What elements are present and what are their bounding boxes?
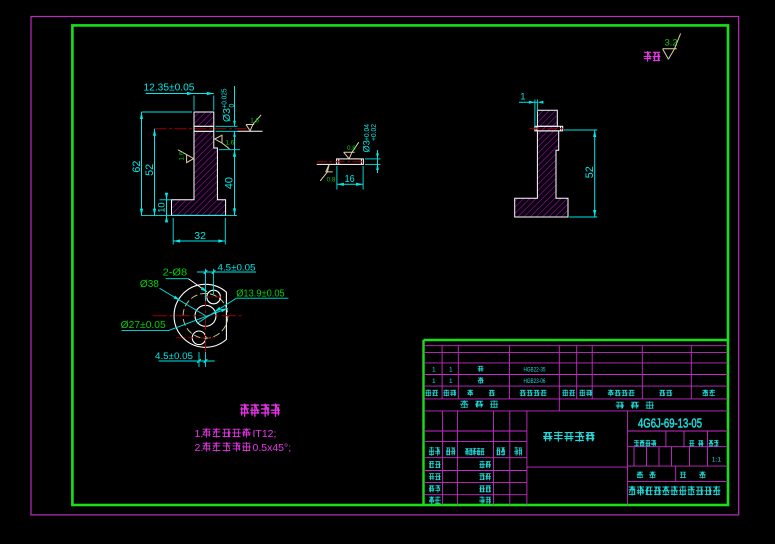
svg-text:Ø13.9±0.05: Ø13.9±0.05 bbox=[236, 288, 285, 299]
svg-text:IT12;: IT12; bbox=[253, 428, 277, 440]
svg-text:16: 16 bbox=[345, 174, 355, 185]
svg-text:1.6: 1.6 bbox=[226, 140, 235, 147]
svg-text:4.5±0.05: 4.5±0.05 bbox=[218, 263, 256, 274]
svg-text:0.5x45°;: 0.5x45°; bbox=[253, 442, 292, 454]
svg-text:+0.04: +0.04 bbox=[364, 124, 371, 141]
svg-text:62: 62 bbox=[131, 161, 143, 173]
svg-text:1: 1 bbox=[432, 367, 436, 374]
svg-text:10: 10 bbox=[157, 202, 168, 213]
svg-text:1.: 1. bbox=[195, 428, 204, 440]
svg-text:12.35±0.05: 12.35±0.05 bbox=[144, 83, 195, 94]
svg-text:HGB22-35: HGB22-35 bbox=[524, 367, 546, 374]
svg-text:52: 52 bbox=[144, 164, 156, 176]
svg-text:1.6: 1.6 bbox=[179, 151, 186, 160]
svg-text:1.6: 1.6 bbox=[250, 117, 259, 124]
svg-text:Ø27±0.05: Ø27±0.05 bbox=[121, 320, 167, 331]
svg-text:HGB23-06: HGB23-06 bbox=[524, 378, 546, 385]
svg-text:2-Ø8: 2-Ø8 bbox=[163, 267, 188, 278]
svg-text:Ø3: Ø3 bbox=[362, 140, 372, 152]
svg-text:4.5±0.05: 4.5±0.05 bbox=[155, 351, 193, 362]
svg-text:+0.02: +0.02 bbox=[371, 124, 378, 141]
svg-text:+0.025: +0.025 bbox=[221, 88, 228, 108]
svg-text:4G6J-69-13-05: 4G6J-69-13-05 bbox=[638, 417, 702, 431]
svg-text:1: 1 bbox=[432, 378, 436, 385]
svg-text:Ø38: Ø38 bbox=[140, 279, 160, 290]
svg-text:32: 32 bbox=[194, 230, 206, 242]
svg-text:1: 1 bbox=[449, 367, 453, 374]
svg-text:Ø3: Ø3 bbox=[221, 108, 233, 122]
svg-text:0.8: 0.8 bbox=[347, 145, 356, 152]
svg-text:1: 1 bbox=[449, 378, 453, 385]
svg-text:0.8: 0.8 bbox=[327, 176, 336, 183]
svg-text:1: 1 bbox=[520, 92, 525, 103]
svg-text:40: 40 bbox=[224, 177, 236, 189]
svg-text:1:1: 1:1 bbox=[712, 456, 722, 463]
svg-text:52: 52 bbox=[584, 166, 596, 178]
svg-text:2.: 2. bbox=[195, 442, 204, 454]
